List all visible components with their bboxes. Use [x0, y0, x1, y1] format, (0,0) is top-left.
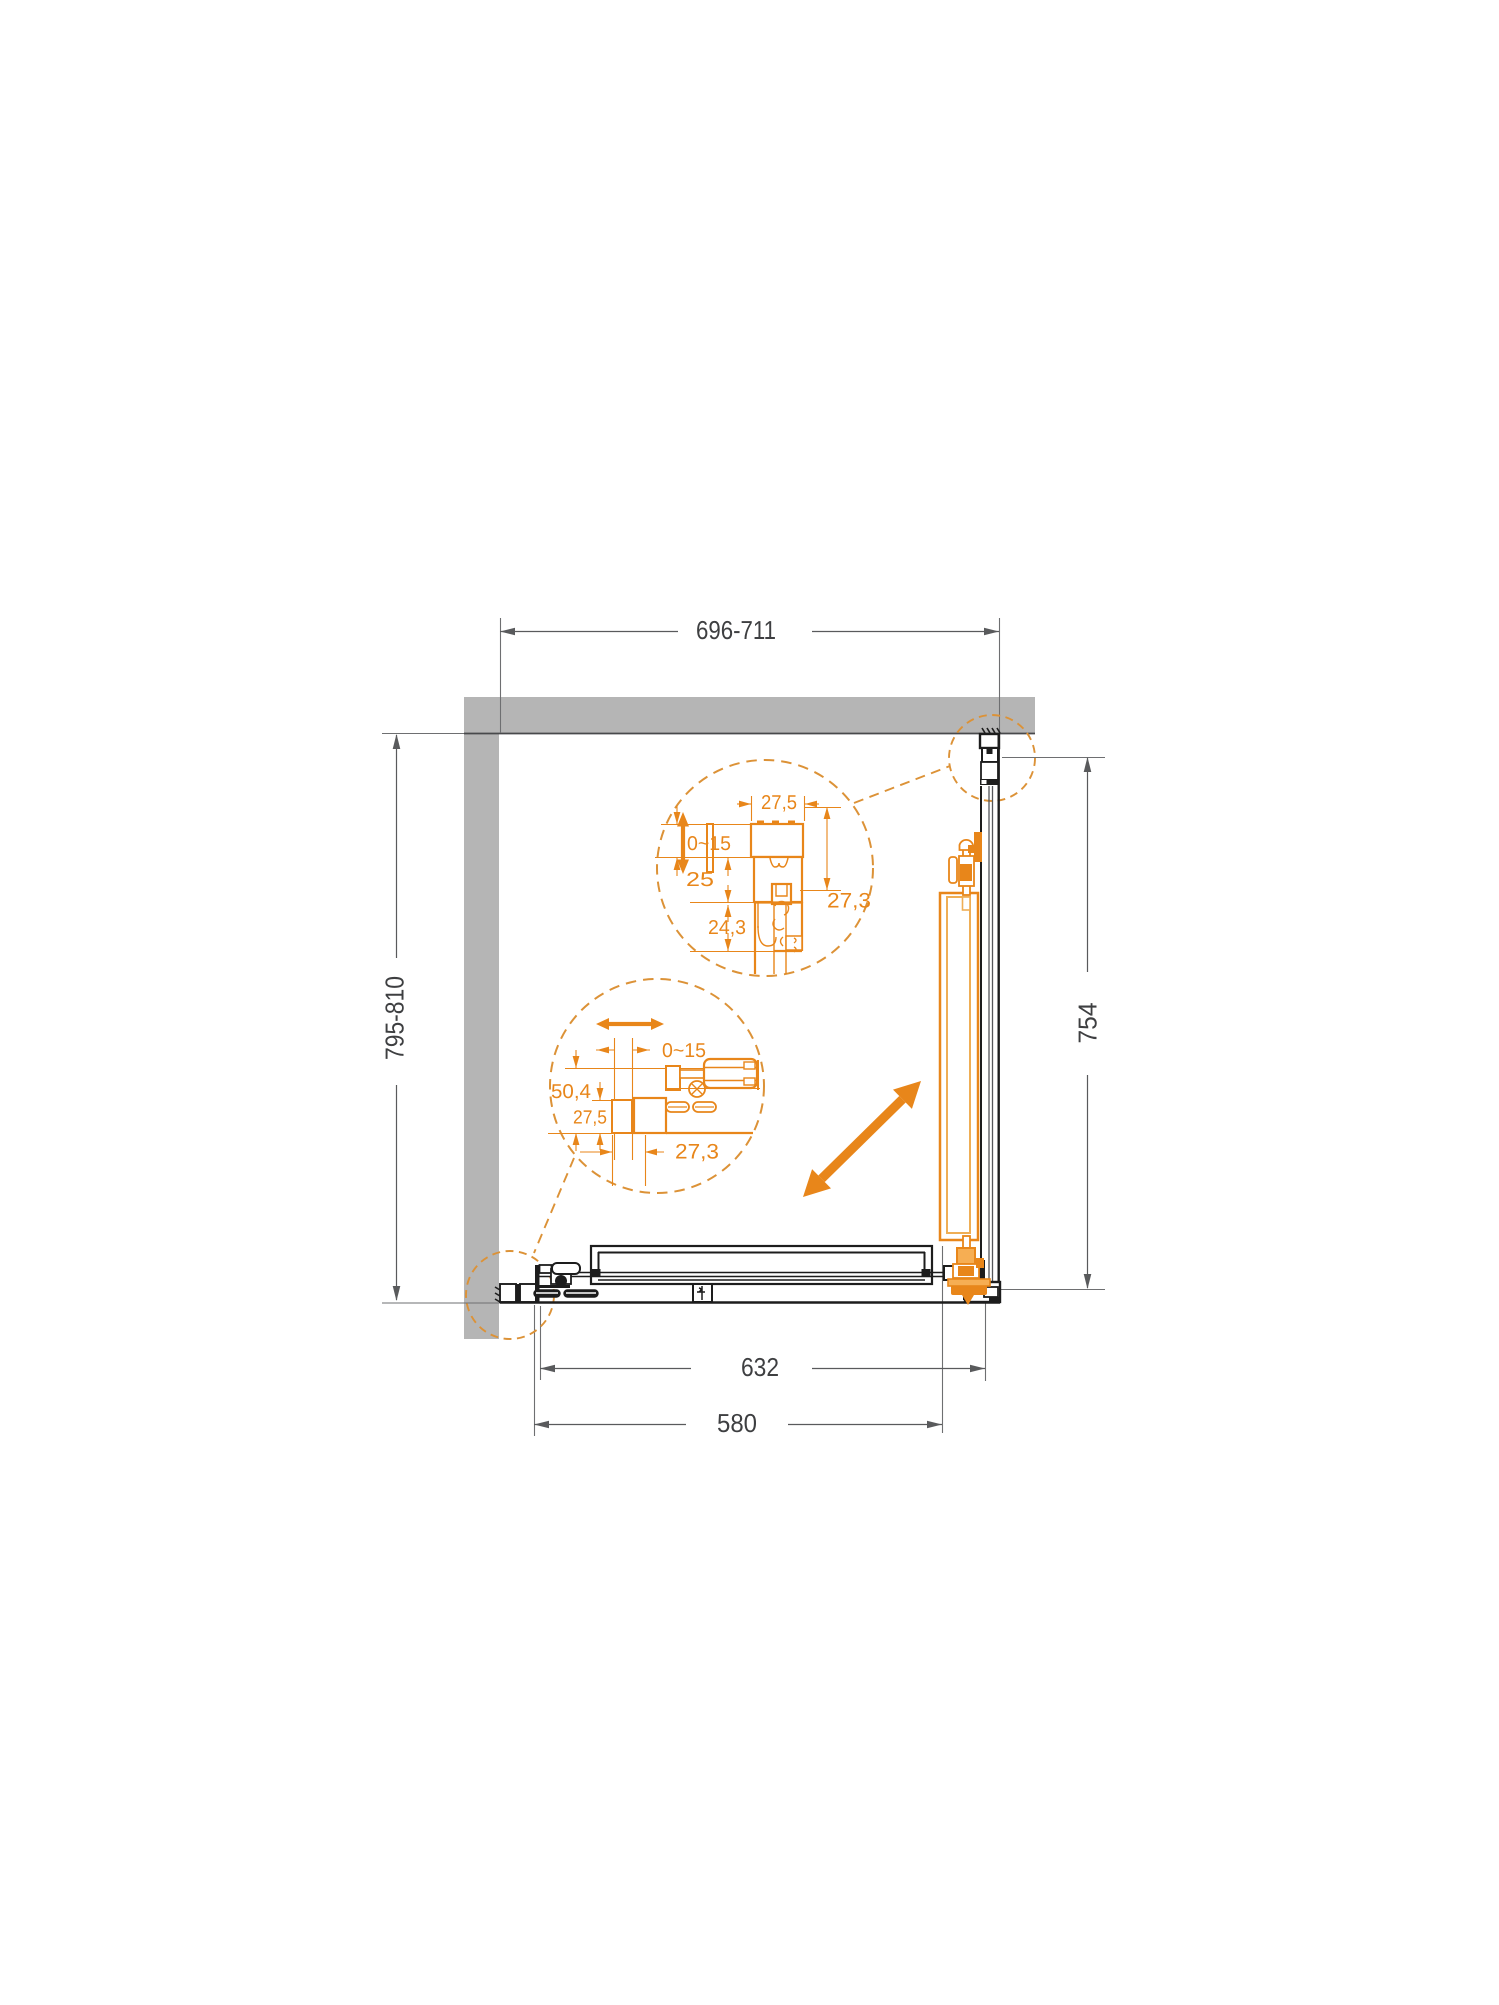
svg-text:25: 25 [686, 869, 714, 891]
svg-text:754: 754 [1073, 1003, 1103, 1044]
svg-text:795-810: 795-810 [380, 976, 410, 1060]
svg-text:24,3: 24,3 [708, 917, 746, 939]
svg-text:27,3: 27,3 [675, 1141, 719, 1164]
svg-text:0~15: 0~15 [687, 833, 731, 855]
svg-text:27,5: 27,5 [761, 792, 797, 814]
svg-text:0~15: 0~15 [662, 1040, 706, 1062]
svg-text:696-711: 696-711 [696, 615, 776, 645]
svg-text:580: 580 [717, 1408, 757, 1438]
svg-text:27,5: 27,5 [573, 1108, 607, 1129]
svg-text:632: 632 [741, 1352, 779, 1382]
svg-text:50,4: 50,4 [551, 1081, 591, 1103]
svg-text:27,3: 27,3 [827, 890, 871, 913]
